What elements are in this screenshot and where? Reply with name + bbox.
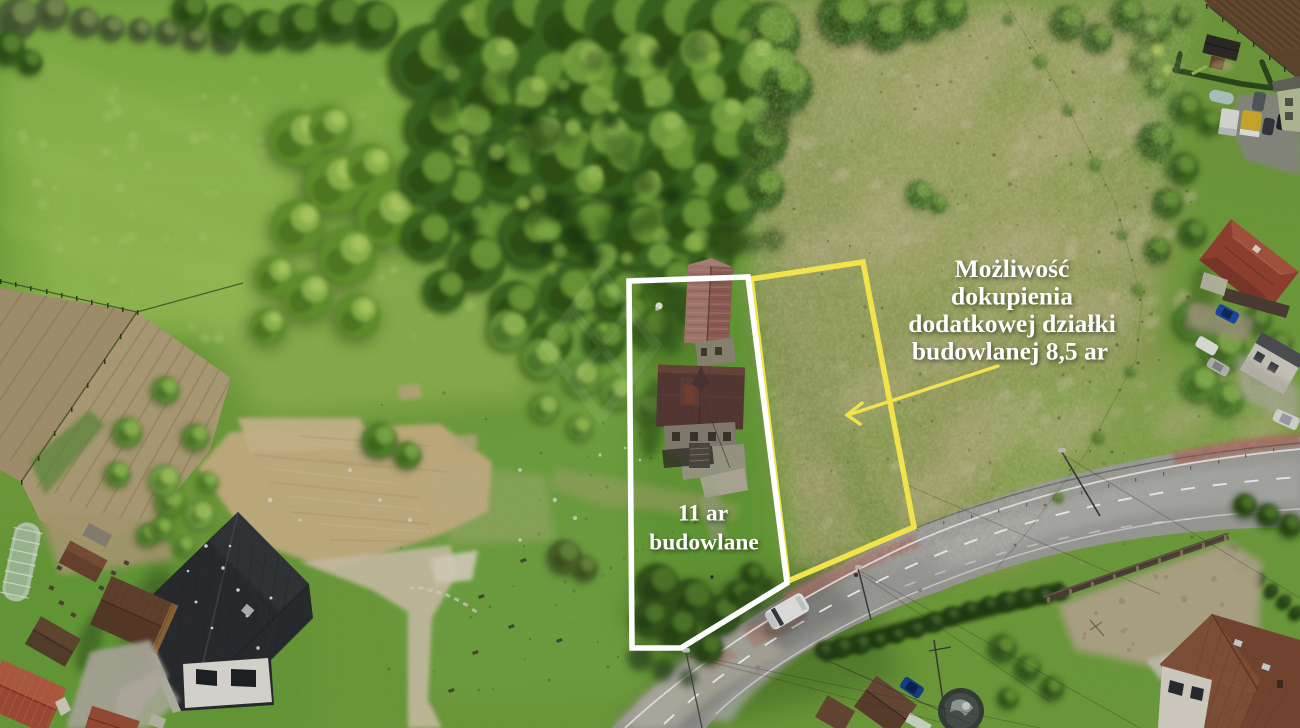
svg-text:budowlanej 8,5 ar: budowlanej 8,5 ar (912, 337, 1108, 366)
svg-text:budowlane: budowlane (649, 530, 759, 556)
svg-text:Możliwość: Możliwość (955, 254, 1070, 283)
svg-text:dodatkowej działki: dodatkowej działki (908, 309, 1116, 338)
svg-text:11 ar: 11 ar (678, 501, 728, 527)
svg-text:dokupienia: dokupienia (951, 282, 1073, 311)
